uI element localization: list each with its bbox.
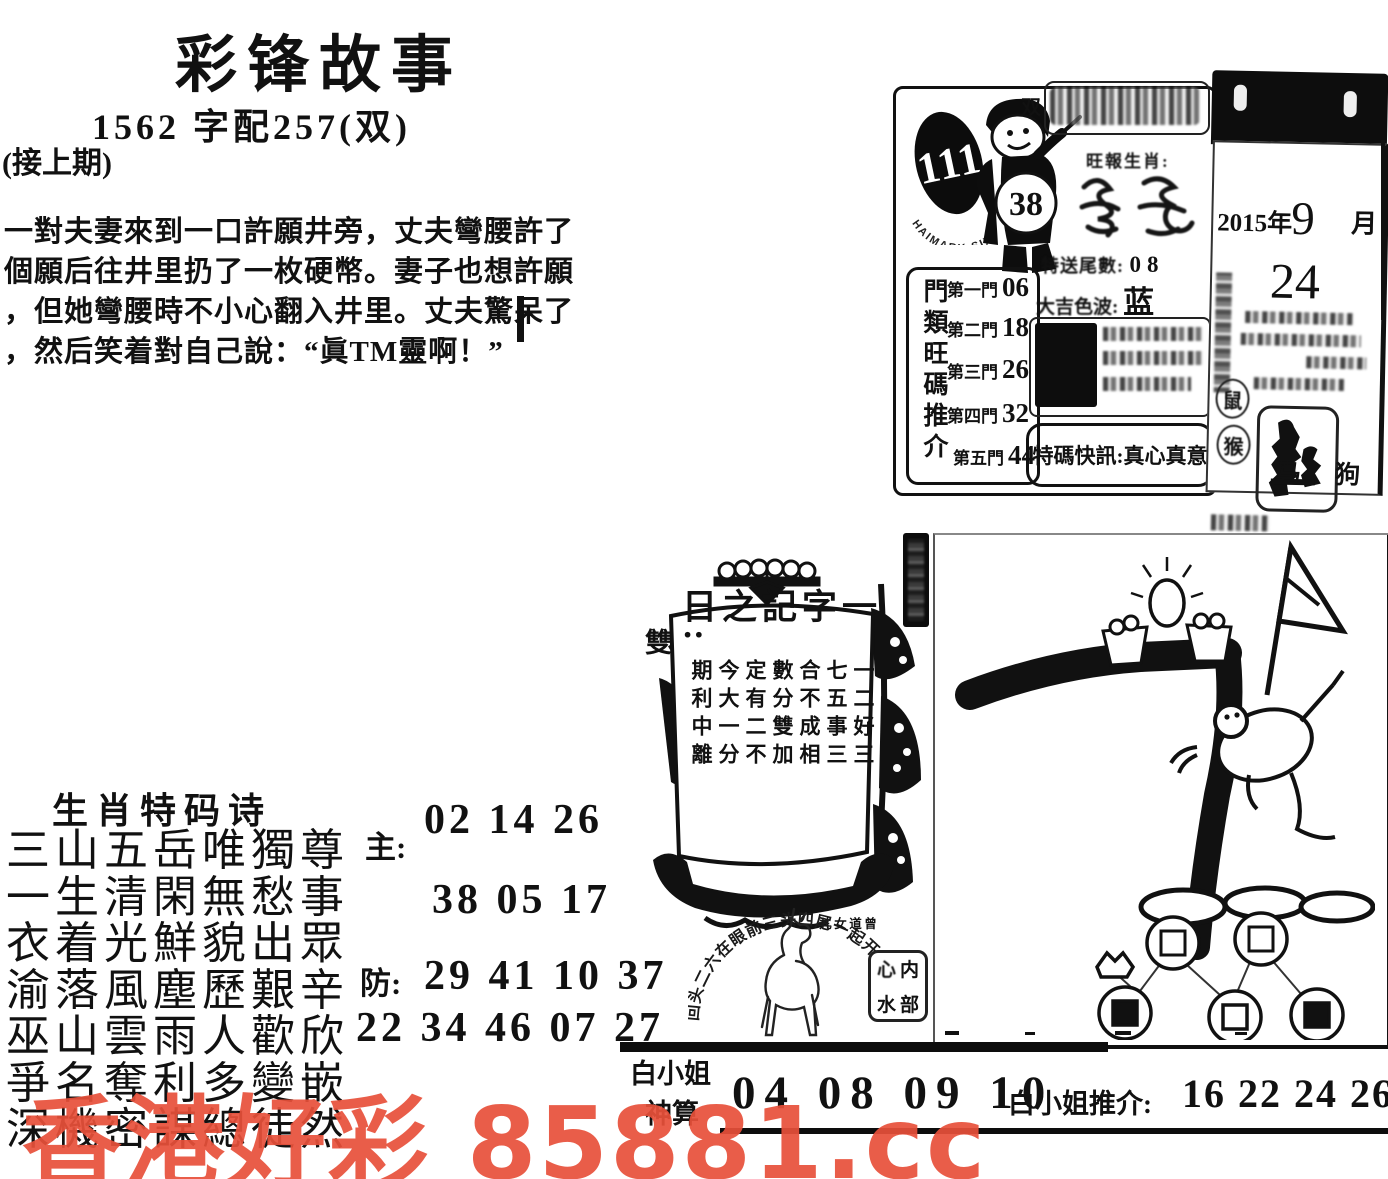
blurry-text-line [1103, 377, 1191, 391]
flash-label: 特碼快訊: [1033, 440, 1124, 470]
tail-number-row: 特送尾數: 08 [1041, 252, 1165, 278]
rebus-drawing [935, 535, 1375, 1040]
blurry-text-line [1254, 377, 1344, 391]
page-edge-mark [1381, 140, 1385, 320]
calendar-year: 2015年 [1217, 202, 1293, 240]
calendar-animals: 马 狗 [1276, 454, 1375, 492]
svg-text:回头二六在眼前三头四尾一起开: 回头二六在眼前三头四尾一起开 [688, 911, 883, 1022]
gates-label: 門類旺碼推介 [915, 278, 951, 474]
ball-number: 38 [1009, 186, 1043, 223]
poem-line: 一生清閑無愁事 [6, 875, 349, 922]
page-subtitle: 1562 字配257(双) [92, 98, 411, 150]
story-line: 個願后往井里扔了一枚硬幣。妻子也想許願 [4, 252, 529, 292]
speech-bubble [1044, 81, 1210, 135]
gate-row: 第四門 32 [947, 398, 1033, 429]
sail-line: 二五不分有大利 [637, 687, 876, 711]
tail-value: 08 [1130, 252, 1165, 277]
stamp-char: 内 [900, 955, 919, 982]
recommend-numbers: 16 22 24 26 28 36 [1182, 1070, 1388, 1117]
bubble-char: 双 [1021, 91, 1041, 120]
color-wave-label: 大吉色波: [1036, 297, 1118, 318]
story-paragraph: 一對夫妻來到一口許願井旁，丈夫彎腰許了 個願后往井里扔了一枚硬幣。妻子也想許願 … [4, 212, 529, 372]
continued-label: (接上期) [2, 138, 112, 182]
recommend-label: 白小姐推介: [1008, 1082, 1152, 1121]
calendar-month: 9 [1291, 192, 1316, 246]
inner-tip-stamp: 内 心 部 水 [868, 950, 928, 1022]
poem-line: 渝落風塵歷艱辛 [6, 968, 349, 1015]
stamp-char: 心 [877, 955, 896, 982]
black-square-graphic [1035, 323, 1097, 407]
tear-off-calendar: 2015年 9 月 24 鼠 猴 马 狗 [1204, 70, 1388, 494]
sail-line: 好事成雙二一中 [637, 715, 876, 739]
calendar-binding [1211, 70, 1388, 148]
zodiac-circle: 鼠 [1215, 378, 1250, 419]
flash-box: 特碼快訊:真心真意 [1026, 423, 1214, 487]
blurry-text-line [1306, 356, 1366, 369]
gate-row: 第二門 18 [947, 312, 1033, 343]
guard-numbers-2: 22 34 46 07 27 [356, 1004, 664, 1052]
blurry-vertical-text [1214, 272, 1233, 392]
sail-title-col: 一字記之日: 雙 [637, 588, 876, 655]
gate-row: 第三門 26 [947, 354, 1033, 385]
blurry-text-line [1245, 311, 1353, 325]
blurry-text-line [1241, 333, 1361, 348]
guard-label: 防: [360, 958, 401, 1003]
calendar-month-unit: 月 [1351, 203, 1378, 241]
scribbled-zodiac-glyphs [1074, 167, 1204, 247]
promo-box: 111 HAIMARK SIX 38 双 旺報生肖: [893, 86, 1217, 496]
calendar-day: 24 [1269, 251, 1320, 310]
binding-hole [1343, 91, 1357, 117]
info-box [1029, 317, 1211, 417]
page-title: 彩锋故事 [175, 14, 463, 104]
sail-answer: 雙 [641, 628, 671, 655]
print-smudge [517, 296, 524, 342]
sail-line: 一七合數定今期 [637, 659, 876, 683]
scribble-text [1050, 87, 1200, 125]
binding-hole [1234, 85, 1248, 111]
sail-verse: 一字記之日: 雙 一七合數定今期 二五不分有大利 好事成雙二一中 三三相加不分離… [664, 588, 876, 866]
story-line: 一對夫妻來到一口許願井旁，丈夫彎腰許了 [4, 212, 529, 252]
lottery-flyer-page: 彩锋故事 1562 字配257(双) (接上期) 一對夫妻來到一口許願井旁，丈夫… [0, 0, 1388, 1179]
stamp-char: 部 [900, 990, 919, 1017]
calendar-page: 2015年 9 月 24 鼠 猴 [1206, 140, 1388, 496]
guard-numbers-1: 29 41 10 37 [424, 952, 668, 1000]
poem-line: 巫山雲雨人歡欣 [6, 1014, 349, 1061]
rebus-picture-frame [933, 533, 1388, 1049]
story-line: ，然后笑着對自己說：“眞TM靈啊！” [4, 332, 529, 372]
story-line: ，但她彎腰時不小心翻入井里。丈夫驚呆了 [4, 292, 529, 332]
main-numbers-1: 02 14 26 [424, 796, 603, 844]
blurry-text-line [1103, 351, 1203, 365]
flash-value: 真心真意 [1124, 440, 1208, 470]
gate-row: 第一門 06 [947, 272, 1033, 303]
stamp-char: 水 [877, 990, 896, 1017]
site-watermark: 香港好彩 85881.cc [22, 1062, 987, 1179]
divider-bar [620, 1042, 1108, 1052]
blurry-text-line [1103, 327, 1203, 341]
main-label: 主: [365, 822, 406, 867]
tail-label: 特送尾數: [1041, 256, 1124, 276]
zodiac-circle: 猴 [1216, 424, 1251, 465]
sail-title: 一字記之日: [677, 588, 876, 647]
main-numbers-2: 38 05 17 [432, 876, 611, 924]
sail-line: 三三相加不分離 [637, 743, 876, 767]
blurry-lunar-date [1211, 514, 1269, 531]
gates-box: 門類旺碼推介 第一門 06 第二門 18 第三門 26 第四門 32 第五門 4… [906, 267, 1040, 485]
poem-line: 衣着光鮮貌出眾 [6, 921, 349, 968]
poem-line: 三山五岳唯獨尊 [6, 828, 349, 875]
horse-arc-text: 回头二六在眼前三头四尾一起开 [688, 911, 883, 1022]
